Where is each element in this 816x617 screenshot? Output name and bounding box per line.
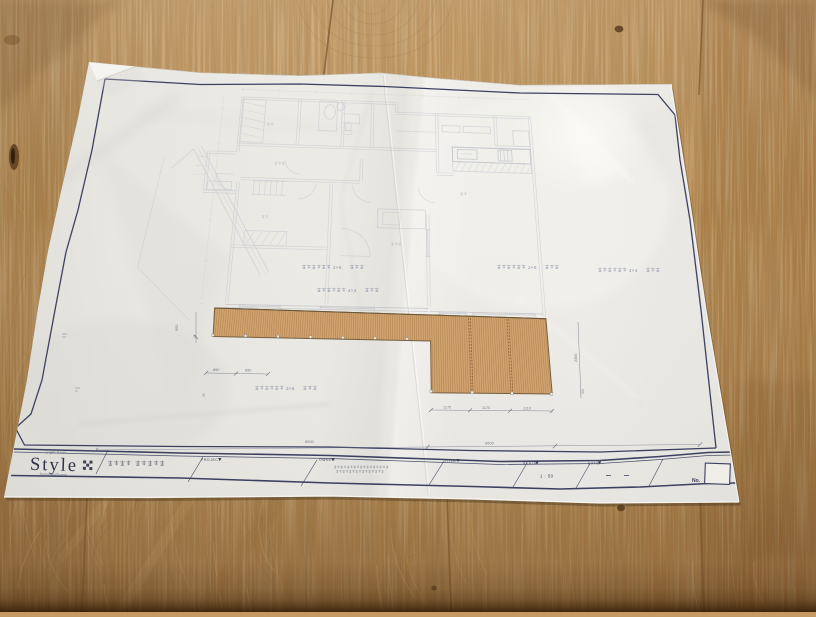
svg-text:1170: 1170 — [482, 406, 490, 410]
svg-text:05: 05 — [202, 393, 206, 397]
svg-text:302: 302 — [581, 388, 585, 394]
svg-text:2300: 2300 — [574, 354, 578, 362]
svg-text:SCALE: SCALE — [523, 462, 537, 466]
svg-text:No.: No. — [692, 478, 701, 484]
svg-text:2×6: 2×6 — [333, 265, 342, 270]
svg-text:900: 900 — [175, 325, 179, 331]
svg-text:9600: 9600 — [485, 441, 495, 446]
svg-text:1110: 1110 — [523, 407, 531, 411]
svg-text:1170: 1170 — [443, 406, 451, 410]
svg-text:PROJECT: PROJECT — [201, 458, 221, 462]
svg-text:890: 890 — [245, 369, 251, 373]
svg-text:Light Staff: Light Staff — [46, 450, 66, 455]
svg-text:2×6: 2×6 — [528, 265, 537, 270]
svg-text:1 : 50: 1 : 50 — [540, 474, 554, 479]
svg-text:TITLE: TITLE — [444, 459, 456, 463]
svg-text:4×4: 4×4 — [629, 268, 638, 273]
svg-text:4×4: 4×4 — [348, 288, 357, 293]
svg-text:DATE: DATE — [588, 462, 599, 466]
svg-text:890: 890 — [213, 368, 219, 372]
svg-text:8500: 8500 — [305, 439, 315, 444]
svg-text:2×6: 2×6 — [286, 386, 295, 391]
svg-text:02: 02 — [193, 334, 197, 338]
